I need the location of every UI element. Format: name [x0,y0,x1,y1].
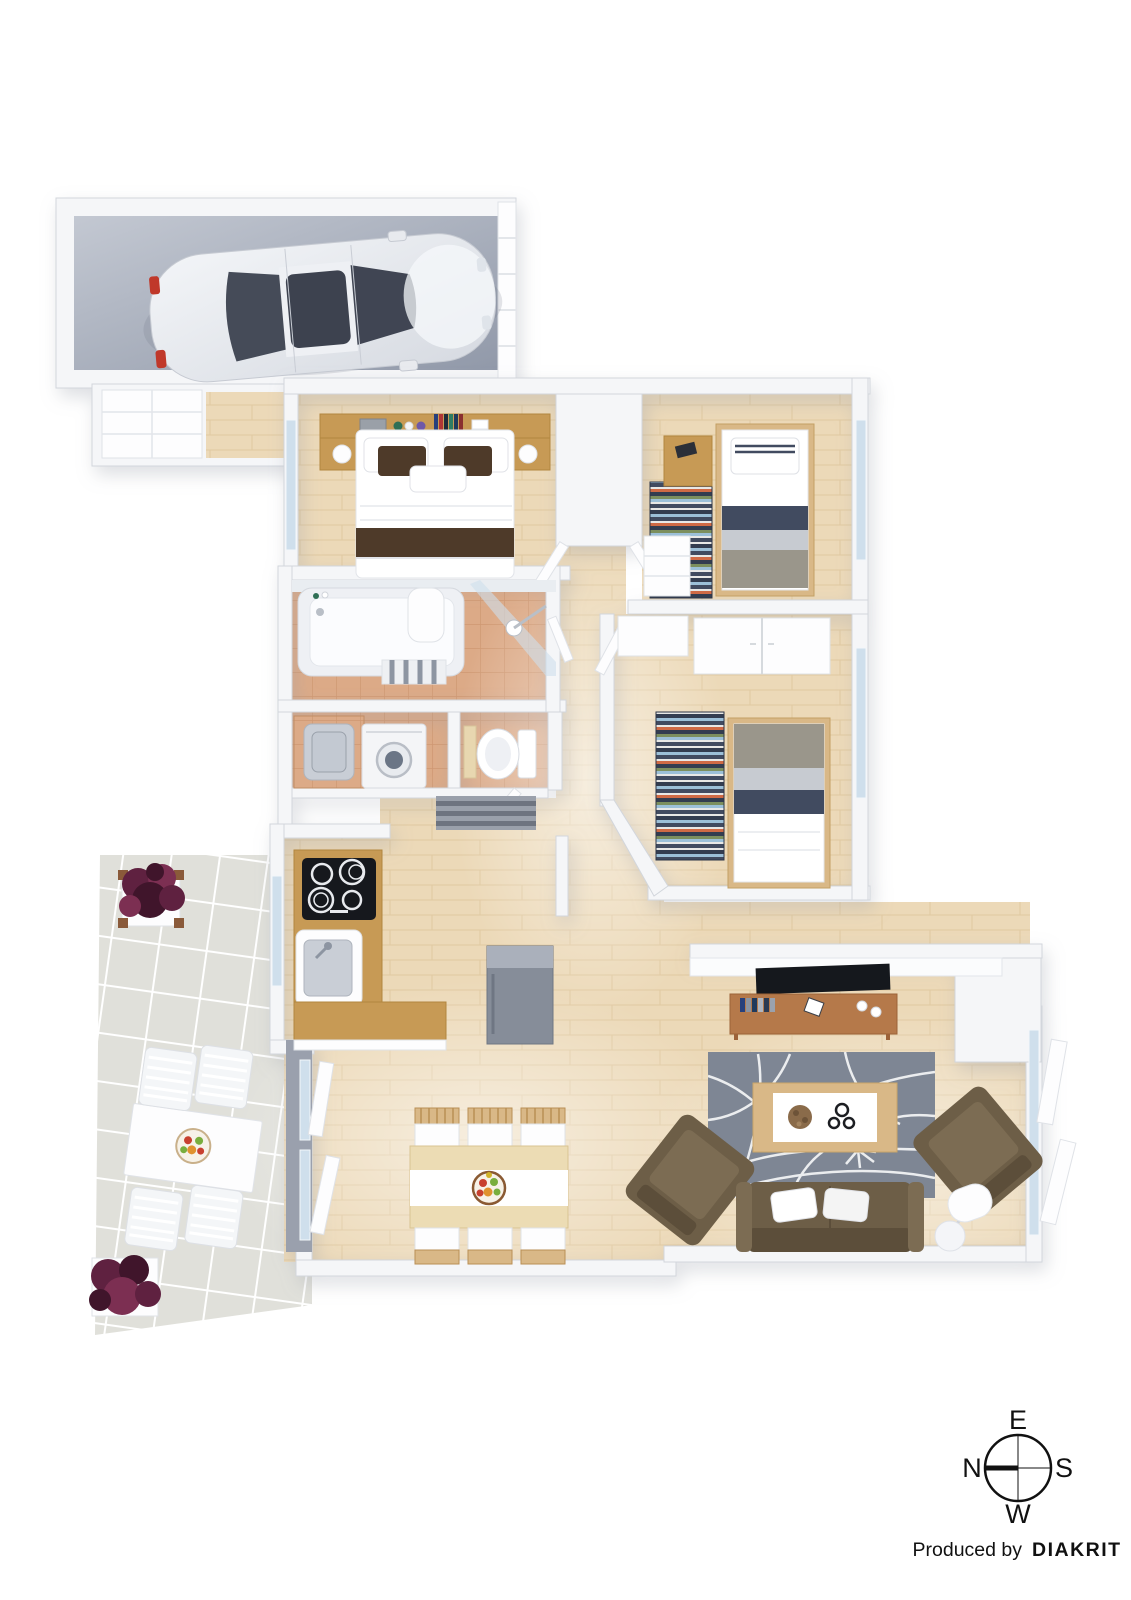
wall-segment [278,700,566,712]
compass-west: W [1005,1499,1031,1529]
wall-segment [284,378,870,394]
patio-planter-north [118,863,185,928]
car-mirror [388,230,407,242]
credit-prefix: Produced by [913,1539,1023,1561]
dining-chair [468,1228,512,1264]
bedroom-2 [644,424,814,598]
patio-planter-south [89,1255,161,1316]
stereo [360,419,386,431]
window-bedroom2 [856,420,866,560]
kitchen-peninsula [294,1002,446,1040]
wall-segment [448,712,460,790]
single-bed [716,424,814,596]
floorplan-svg: E S W N Produced by DIAKRIT [0,0,1131,1600]
window-kitchen [272,876,282,986]
credit: Produced by DIAKRIT [913,1539,1122,1561]
towel [464,726,476,778]
bedside-lamp [333,445,351,463]
wall-segment [278,566,292,824]
toilet [477,729,536,779]
toilet-tank [518,730,536,778]
car-sunroof [285,270,351,349]
wardrobe-2 [618,616,688,656]
wall-closet-block [556,394,642,546]
garage-door [498,202,516,384]
sofa [736,1182,924,1252]
coffee-table [753,1083,897,1152]
pillow [823,1188,870,1222]
credit-brand: DIAKRIT [1032,1539,1122,1561]
dining-chair [521,1228,565,1264]
small-pillow [410,466,466,492]
car-taillight [149,276,161,295]
dining-chair [415,1228,459,1264]
washing-machine [362,724,426,788]
laundry [294,716,426,788]
tv-bench [730,994,897,1040]
bath-faucet [316,608,324,616]
double-bed [356,430,514,578]
compass-north: N [962,1453,982,1483]
wall-segment [690,944,1042,958]
striped-rug [656,712,724,860]
compass-rose: E S W N [962,1405,1073,1529]
dining-chair [521,1108,565,1146]
dining-area [410,1108,568,1264]
bed-runner [356,528,514,558]
lamp-base [935,1221,965,1251]
wall-segment [548,712,562,790]
car-mirror [399,360,418,372]
dining-chairs-south [415,1228,565,1264]
window-master [286,420,296,550]
wall-segment [270,824,390,838]
wall-segment [556,836,568,916]
pillow [731,438,799,474]
armrest [908,1182,924,1252]
compass-east: E [1009,1405,1027,1435]
dining-chair [415,1108,459,1146]
dresser [644,536,690,596]
dining-chairs-north [415,1108,565,1146]
wc [464,726,536,779]
bedside-lamp [519,445,537,463]
window-living [1029,1030,1039,1235]
cooktop [302,858,376,920]
armrest [736,1182,752,1252]
fruit-bowl [473,1172,505,1204]
pedestal-sink [408,588,444,642]
window-bedroom3 [856,648,866,798]
single-bed [728,718,830,888]
car-taillight [155,350,167,369]
pillow [770,1187,818,1223]
kitchen-sink [296,930,362,1006]
wall-segment [628,600,868,614]
floorplan-render: E S W N Produced by DIAKRIT [0,0,1131,1600]
entry-doormat [436,796,536,830]
compass-south: S [1055,1453,1073,1483]
dining-table [410,1146,568,1228]
tv [756,964,891,995]
dining-chair [468,1108,512,1146]
fridge [487,946,553,1044]
